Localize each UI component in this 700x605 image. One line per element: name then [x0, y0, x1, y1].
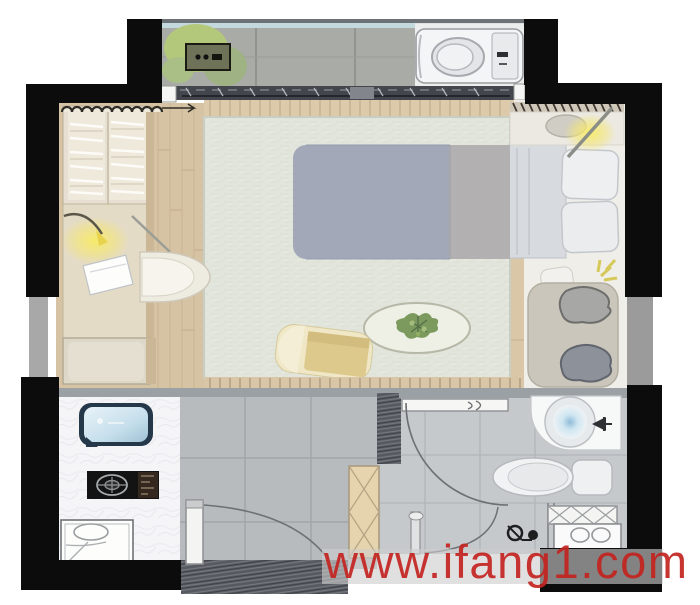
svg-text:www.ifang1.com: www.ifang1.com [323, 535, 689, 588]
